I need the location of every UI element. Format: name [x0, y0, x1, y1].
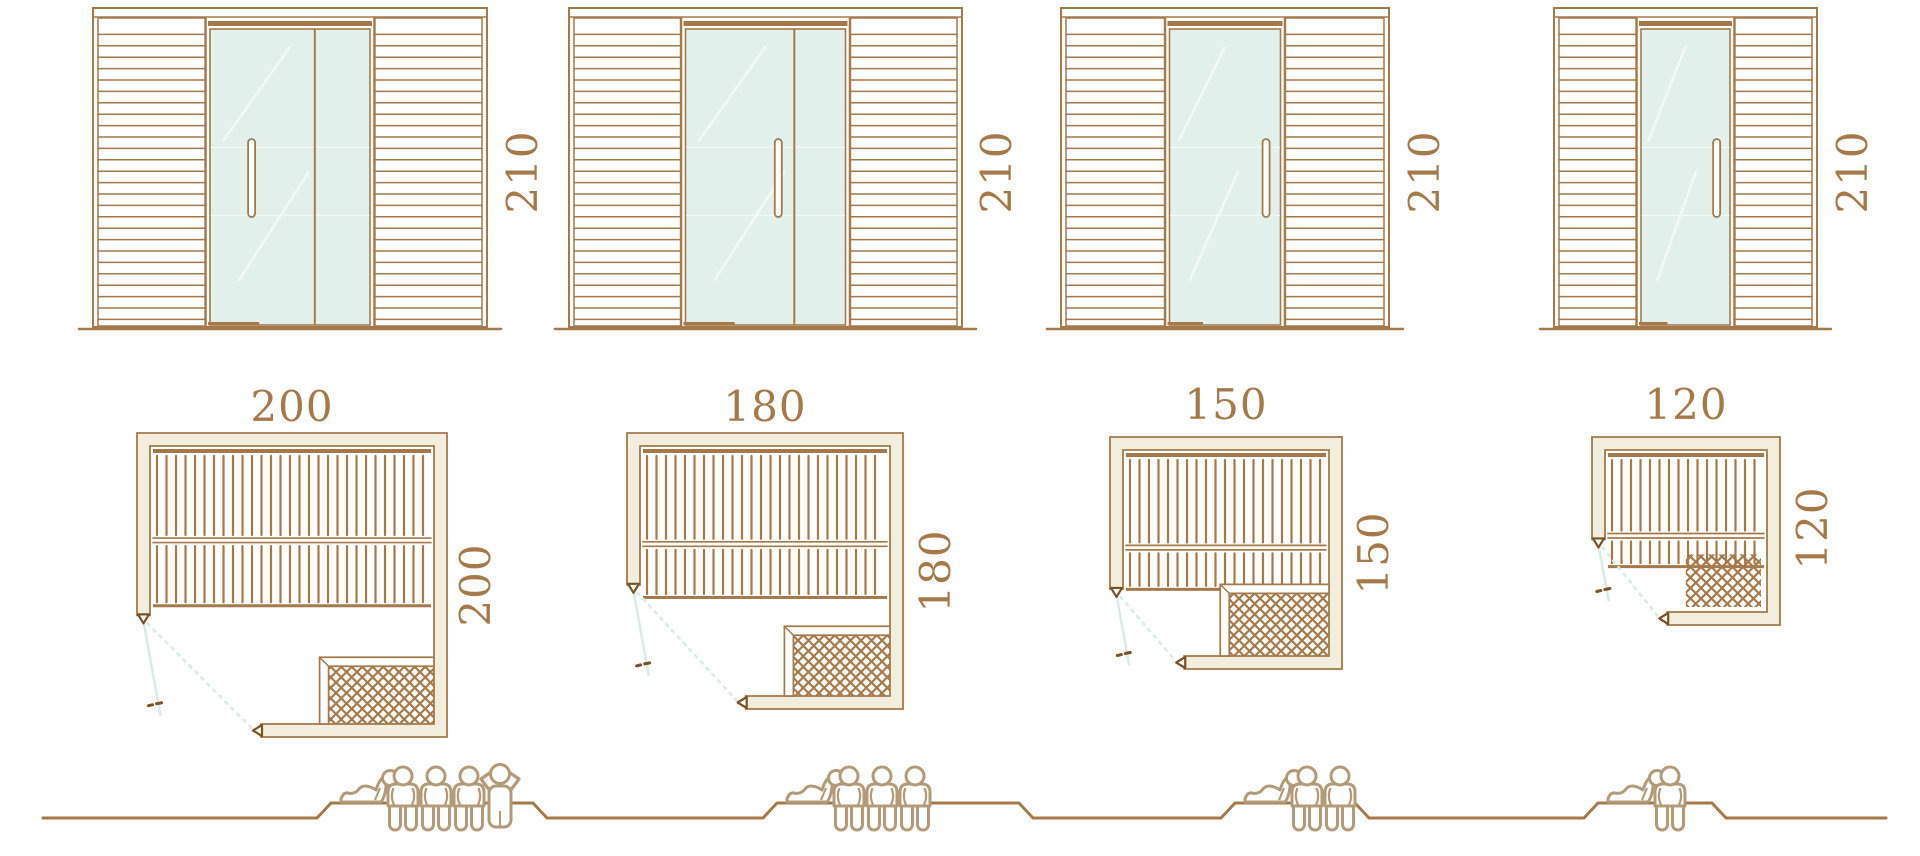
elevation-size-120: [1540, 8, 1831, 329]
ground-line: [43, 803, 1886, 818]
capacity-group-size-150: [1245, 767, 1355, 830]
elevation-size-180: [555, 8, 976, 329]
floor-plan-size-120: [1592, 437, 1780, 625]
capacity-group-size-200: [341, 765, 519, 831]
plan-width-label-150: 150: [1156, 378, 1296, 430]
elevation-size-200: [79, 8, 501, 329]
floor-plan-size-200: [137, 433, 447, 737]
floor-plan-size-180: [627, 433, 903, 709]
plan-width-label-200: 200: [222, 380, 362, 432]
plan-depth-label-200: 200: [449, 515, 501, 655]
seated-person-icon: [1325, 767, 1355, 830]
elevation-size-150: [1047, 8, 1403, 329]
plan-width-label-120: 120: [1616, 378, 1756, 430]
seated-person-icon: [454, 767, 484, 830]
seated-person-icon: [421, 767, 451, 830]
seated-person-icon: [867, 767, 897, 830]
elevation-height-label-200: 210: [496, 102, 548, 242]
plan-depth-label-150: 150: [1347, 483, 1399, 623]
capacity-group-size-120: [1608, 767, 1685, 830]
elevation-height-label-180: 210: [970, 102, 1022, 242]
elevation-height-label-120: 210: [1826, 102, 1878, 242]
sauna-sizes-diagram: 210 210 210 210 200 180 150 120 200 180 …: [0, 0, 1920, 856]
standing-person-icon: [481, 765, 519, 828]
seated-person-icon: [900, 767, 930, 830]
plan-depth-label-120: 120: [1786, 458, 1838, 598]
capacity-group-size-180: [787, 767, 930, 830]
floor-plan-size-150: [1110, 437, 1342, 669]
elevation-height-label-150: 210: [1398, 102, 1450, 242]
plan-width-label-180: 180: [695, 380, 835, 432]
plan-depth-label-180: 180: [909, 501, 961, 641]
